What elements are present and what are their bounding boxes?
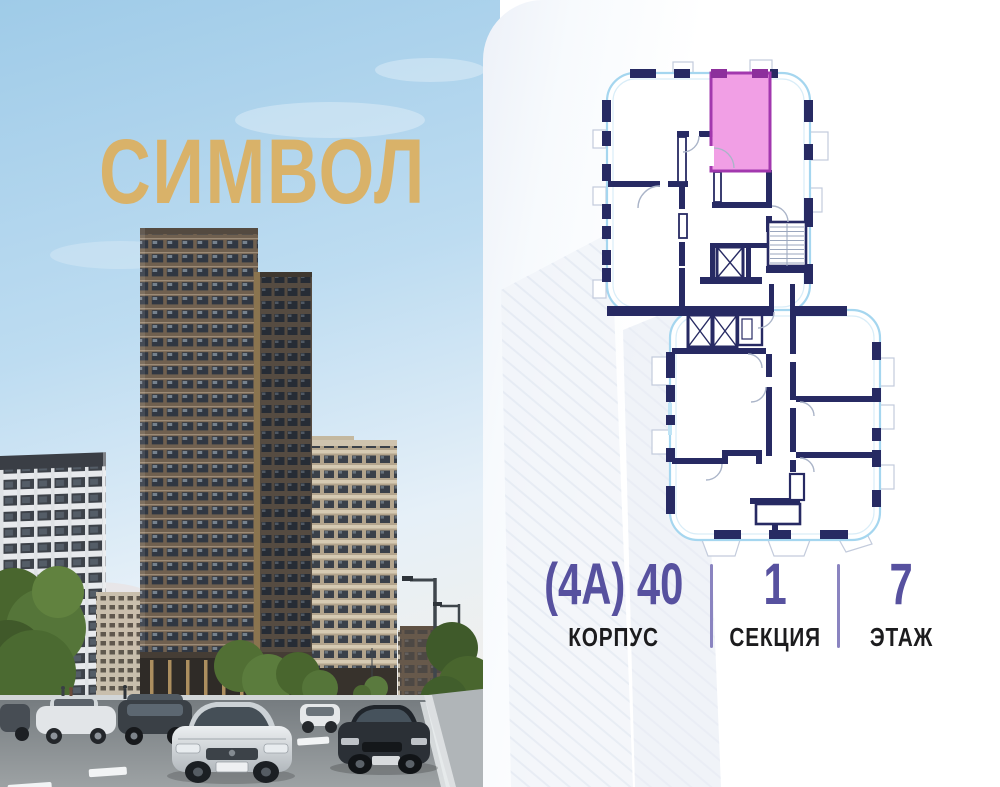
central-tower [140, 228, 312, 705]
selected-apartment[interactable] [708, 69, 770, 171]
floor-value: 7 [890, 556, 913, 614]
elevator-shaft [717, 247, 743, 278]
building-photo [0, 0, 500, 787]
apartment-info-row: (4А) 40 КОРПУС 1 СЕКЦИЯ 7 ЭТАЖ [517, 556, 963, 653]
building-label: КОРПУС [568, 622, 658, 653]
info-section: 1 СЕКЦИЯ [713, 556, 836, 653]
apartment-card-page: СИМВОЛ [0, 0, 1000, 787]
floor-label: ЭТАЖ [870, 622, 933, 653]
details-panel: (4А) 40 КОРПУС 1 СЕКЦИЯ 7 ЭТАЖ [483, 0, 1000, 787]
section-label: СЕКЦИЯ [729, 622, 820, 653]
building-value: (4А) 40 [544, 556, 683, 614]
info-floor: 7 ЭТАЖ [840, 556, 963, 653]
brand-logo: СИМВОЛ [99, 126, 411, 218]
floor-plan [585, 52, 915, 567]
info-building: (4А) 40 КОРПУС [517, 556, 710, 653]
mid-building [96, 592, 146, 704]
staircase [768, 222, 806, 266]
right-tower [312, 436, 397, 705]
section-value: 1 [763, 556, 786, 614]
